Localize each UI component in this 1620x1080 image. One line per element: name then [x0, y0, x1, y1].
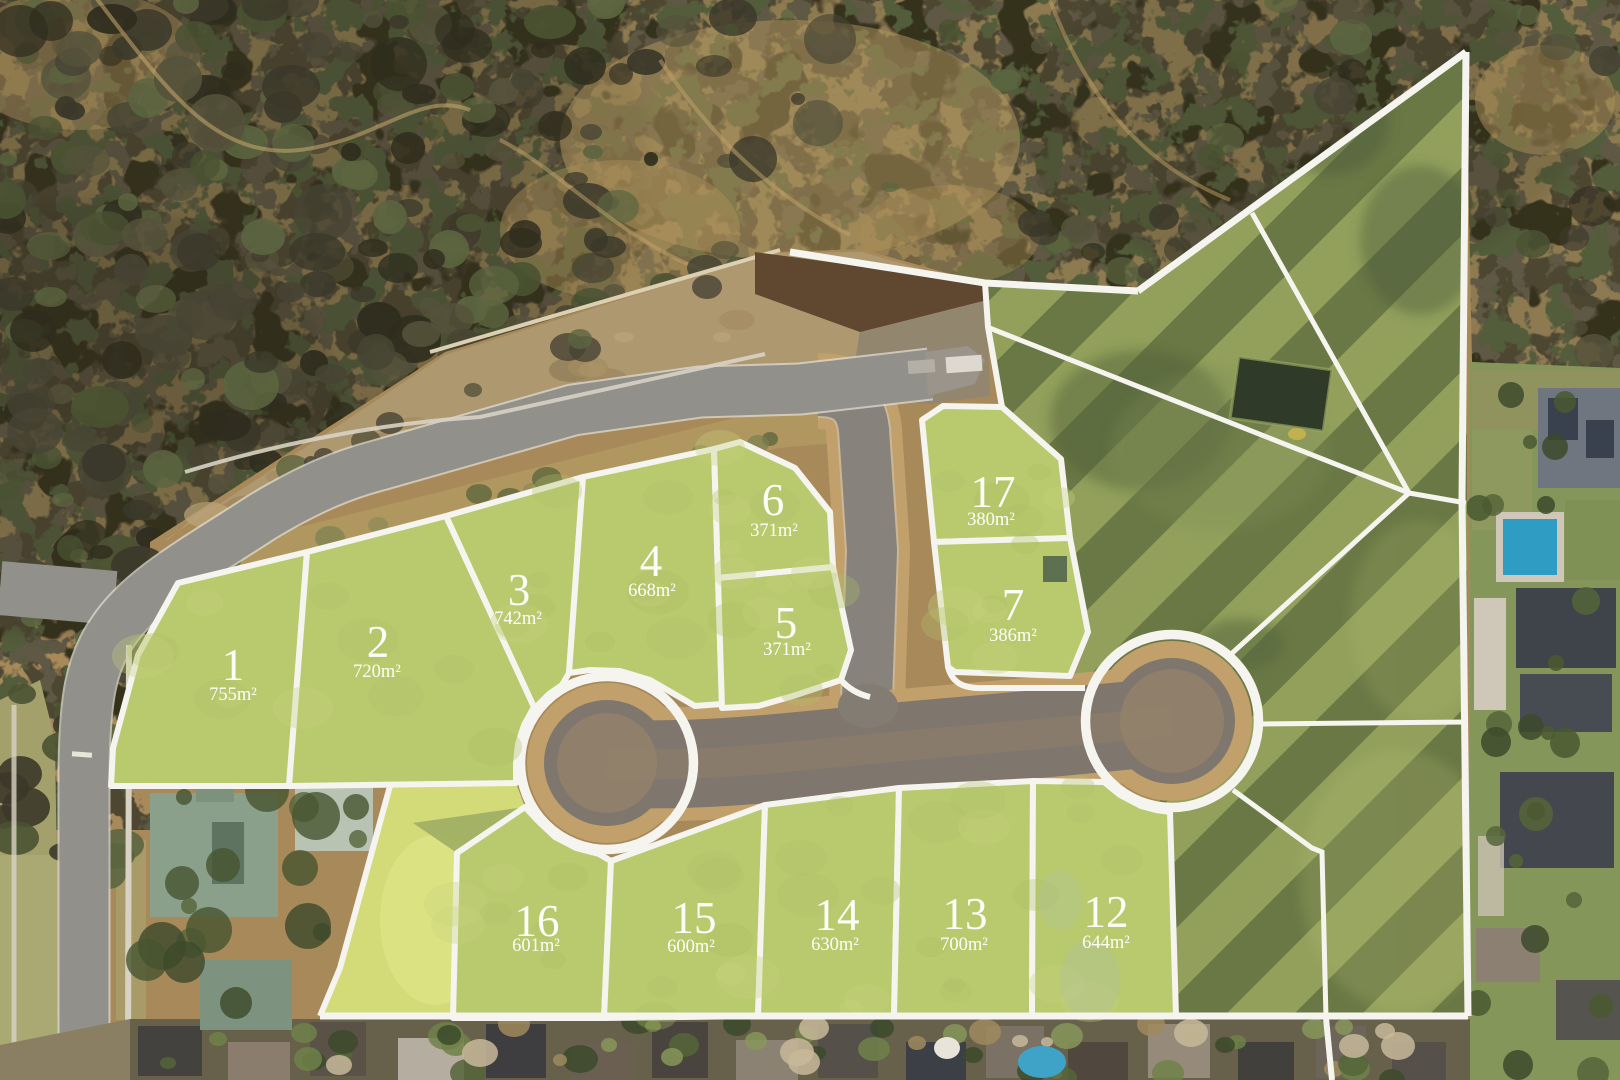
- svg-text:720m²: 720m²: [353, 662, 401, 682]
- svg-text:371m²: 371m²: [763, 640, 811, 660]
- svg-text:3: 3: [508, 565, 531, 615]
- svg-text:668m²: 668m²: [628, 581, 676, 601]
- svg-text:644m²: 644m²: [1082, 933, 1130, 953]
- svg-text:755m²: 755m²: [209, 685, 257, 705]
- svg-text:7: 7: [1002, 580, 1025, 630]
- svg-text:600m²: 600m²: [667, 937, 715, 957]
- svg-text:13: 13: [943, 889, 988, 939]
- svg-text:15: 15: [672, 893, 717, 943]
- svg-text:12: 12: [1084, 887, 1129, 937]
- svg-text:1: 1: [222, 640, 245, 690]
- svg-text:6: 6: [762, 475, 785, 525]
- svg-text:2: 2: [367, 617, 390, 667]
- svg-text:742m²: 742m²: [494, 609, 542, 629]
- svg-text:700m²: 700m²: [940, 935, 988, 955]
- svg-text:630m²: 630m²: [811, 935, 859, 955]
- svg-text:386m²: 386m²: [989, 626, 1037, 646]
- svg-text:601m²: 601m²: [512, 936, 560, 956]
- svg-text:4: 4: [640, 536, 663, 586]
- svg-text:380m²: 380m²: [967, 510, 1015, 530]
- svg-text:371m²: 371m²: [750, 521, 798, 541]
- svg-text:14: 14: [815, 890, 860, 940]
